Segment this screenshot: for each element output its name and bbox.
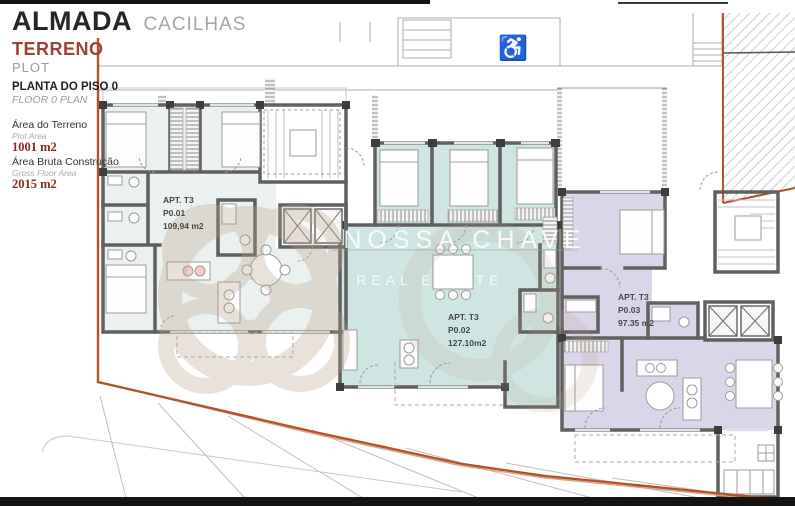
section-plot: PLOT [12,60,50,75]
watermark-brand-name: NOSSA CHAVE [343,226,586,254]
watermark-brand-tagline: REAL ESTATE [356,272,503,288]
gross-area-value: 2015 m2 [12,177,57,192]
title-city: ALMADA [12,6,132,36]
apartment-2-name: APT. T3 [448,312,479,322]
plan-title-pt: PLANTA DO PISO 0 [12,81,118,93]
floor-plan-drawing: ♿ [0,0,795,506]
page-title: ALMADA CACILHAS [12,6,246,37]
gross-area-label-pt: Área Bruta Construção [12,156,119,168]
plan-title-en: FLOOR 0 PLAN [12,94,87,106]
stairwell-right [718,200,775,264]
apartment-1-unit: P0.01 [163,208,185,218]
title-district: CACILHAS [143,14,246,35]
plot-area-value: 1001 m2 [12,140,57,155]
plot-area-label-pt: Área do Terreno [12,119,87,131]
apartment-1-area: 109,94 m2 [163,221,204,231]
floor-plan-page: ♿ [0,0,795,506]
apartment-3-area: 97.35 m2 [618,318,654,328]
neighbour-parcel-hatch [618,3,795,203]
accessible-parking-icon: ♿ [498,34,528,62]
apartment-2-area: 127.10m2 [448,338,487,348]
apartment-3-name: APT. T3 [618,292,649,302]
section-terreno: TERRENO [12,39,104,60]
apartment-1-name: APT. T3 [163,195,194,205]
apartment-2-unit: P0.02 [448,325,470,335]
apartment-3-unit: P0.03 [618,305,640,315]
